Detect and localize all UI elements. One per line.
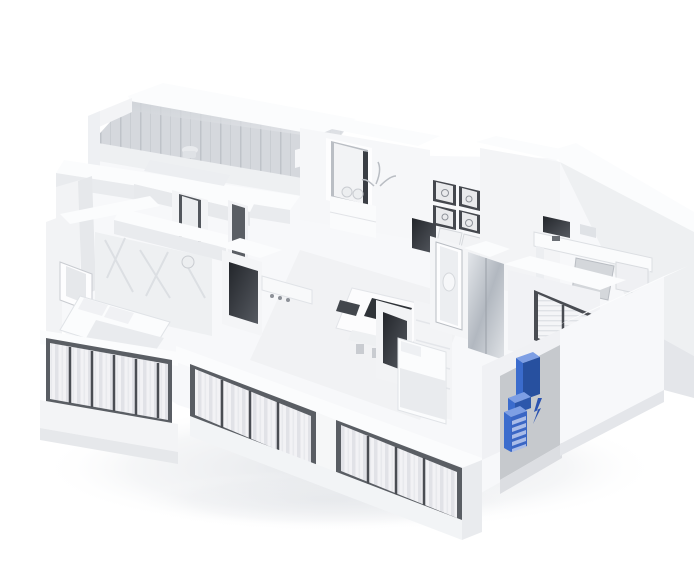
floorplan-render: White 3D cutaway model of an apartment s… xyxy=(0,0,694,564)
console-item xyxy=(286,298,290,302)
toilet-base xyxy=(183,151,196,158)
console-item xyxy=(270,294,274,298)
stool xyxy=(356,344,364,354)
vase-1 xyxy=(342,187,352,197)
bedside-lamp xyxy=(182,256,194,268)
bath2-fixture xyxy=(443,273,455,291)
entrance-door-edge xyxy=(363,151,368,206)
sunroom-left-face xyxy=(88,111,100,173)
left-balcony-windows xyxy=(40,330,178,464)
front-corner-face xyxy=(462,460,482,540)
monitor-stand xyxy=(552,236,560,241)
drawer-front-face xyxy=(504,412,511,452)
living-room-tv xyxy=(229,262,258,324)
floorplan-svg: White 3D cutaway model of an apartment s… xyxy=(0,0,694,564)
vase-2 xyxy=(353,189,363,199)
console-item xyxy=(278,296,282,300)
